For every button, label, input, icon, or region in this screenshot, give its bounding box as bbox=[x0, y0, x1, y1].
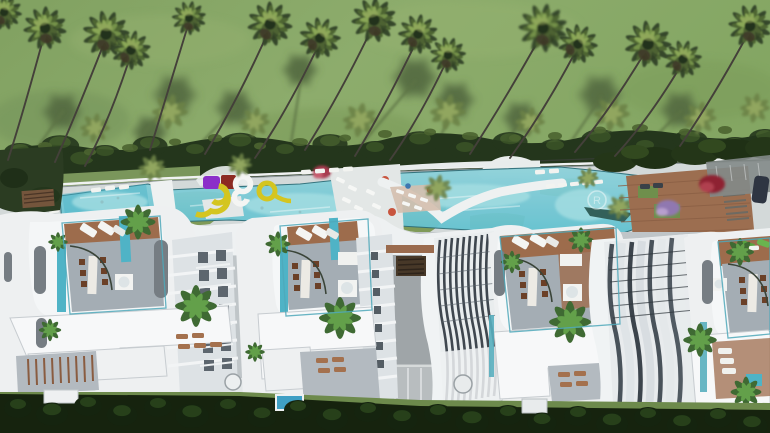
svg-text:R: R bbox=[593, 195, 601, 207]
